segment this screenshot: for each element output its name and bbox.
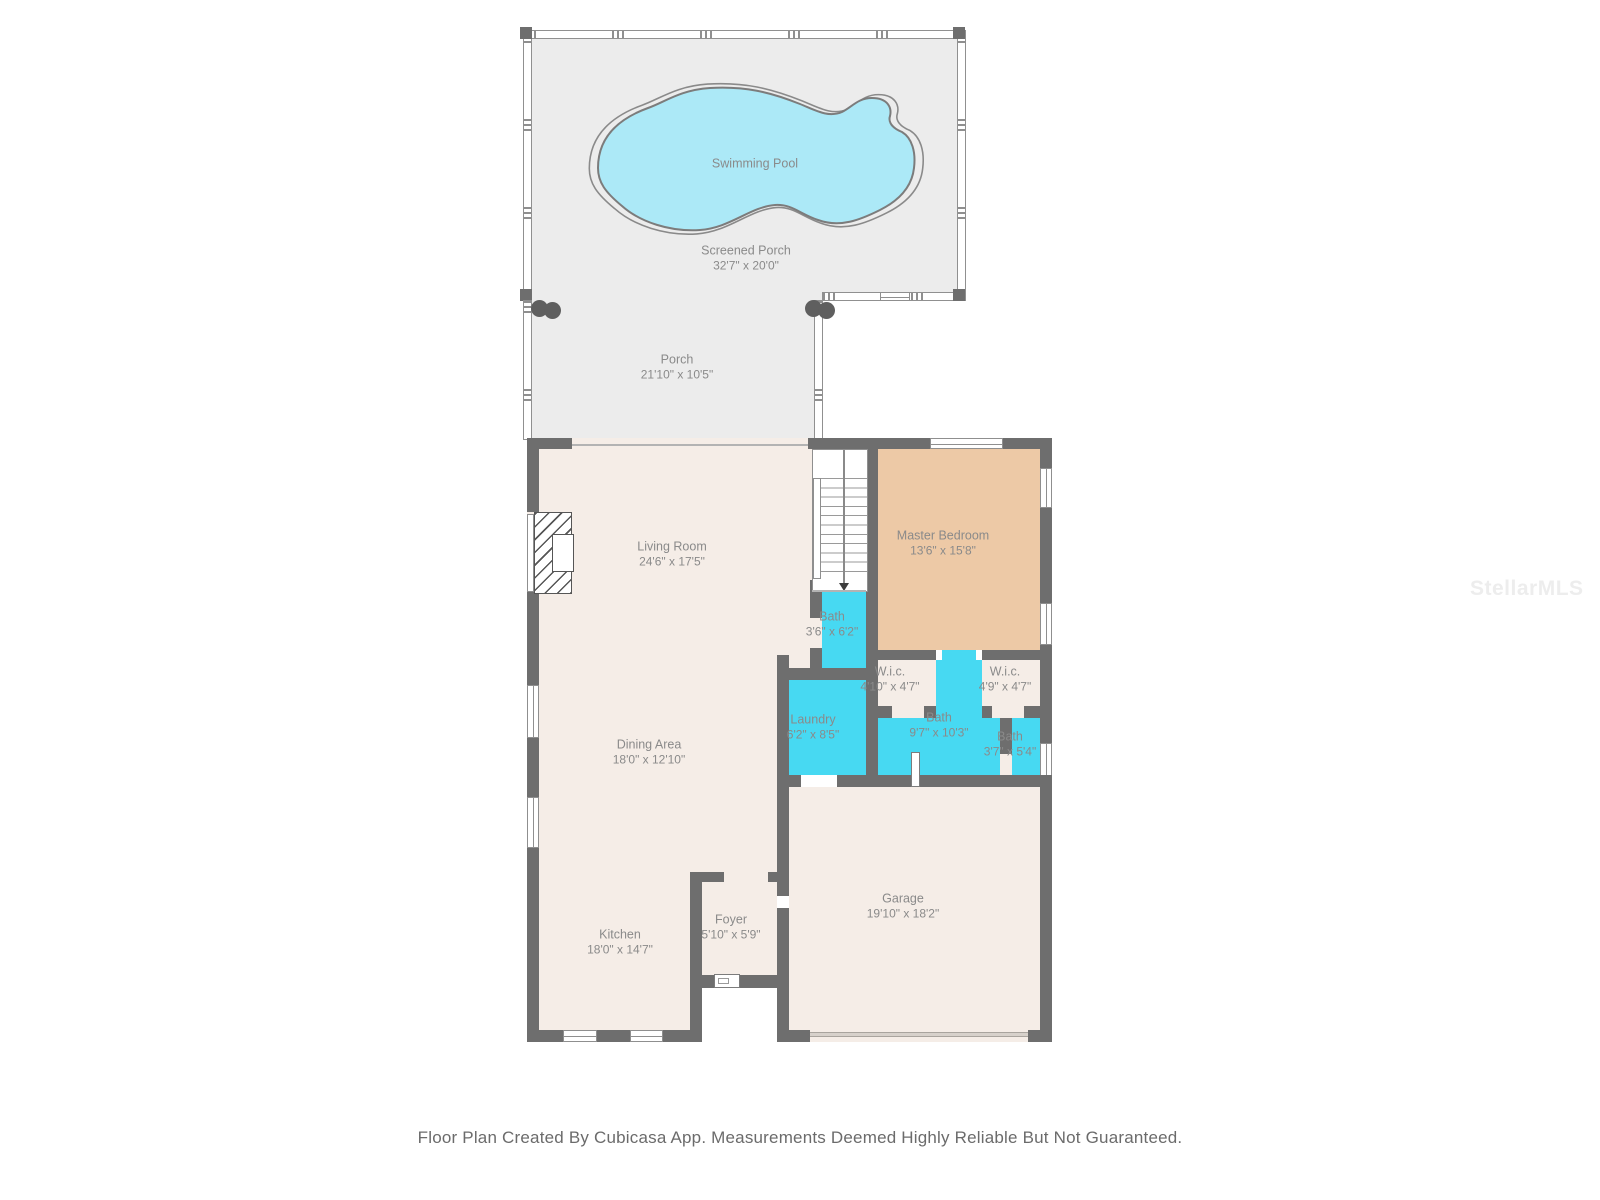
door-opening <box>801 775 837 787</box>
room-label-bath-main: Bath 9'7" x 10'3" <box>909 710 968 739</box>
wall <box>1028 1030 1052 1042</box>
room-dims: 32'7" x 20'0" <box>701 258 791 272</box>
window <box>930 438 1003 449</box>
screen-window <box>880 292 910 301</box>
wall <box>702 872 724 882</box>
room-label-porch: Porch 21'10" x 10'5" <box>641 352 714 381</box>
screen-wall-left <box>523 30 532 300</box>
room-dims: 3'6" x 6'2" <box>806 624 858 638</box>
room-label-living-room: Living Room 24'6" x 17'5" <box>637 539 706 568</box>
entry-recess <box>702 987 777 1042</box>
room-label-wic-left: W.i.c. 4'10" x 4'7" <box>860 664 919 693</box>
screen-post <box>520 27 532 39</box>
wall <box>527 438 539 512</box>
wall <box>982 706 992 718</box>
room-dims: 3'7" x 5'4" <box>984 744 1036 758</box>
room-name: Bath <box>984 729 1036 744</box>
wall <box>597 1030 630 1042</box>
room-dims: 18'0" x 14'7" <box>587 942 653 956</box>
room-name: Swimming Pool <box>712 157 798 172</box>
room-name: W.i.c. <box>860 664 919 679</box>
door-leaf <box>911 752 920 787</box>
room-name: Kitchen <box>587 927 653 942</box>
stair-railing <box>813 478 821 579</box>
wall <box>777 908 789 1042</box>
wall <box>1040 438 1052 468</box>
wall <box>878 650 936 660</box>
wall <box>527 592 539 685</box>
wall <box>777 1030 810 1042</box>
room-dims: 9'7" x 10'3" <box>909 725 968 739</box>
room-label-screened-porch: Screened Porch 32'7" x 20'0" <box>701 243 791 272</box>
wall <box>808 438 930 449</box>
room-dims: 19'10" x 18'2" <box>867 906 940 920</box>
room-label-foyer: Foyer 5'10" x 5'9" <box>701 912 760 941</box>
window <box>527 685 539 738</box>
stair-direction-line <box>843 450 845 583</box>
porch-screen-right <box>814 300 823 440</box>
room-name: Screened Porch <box>701 243 791 258</box>
passage-floor <box>936 650 982 718</box>
fireplace-window <box>527 514 534 592</box>
floor-plan-canvas: Swimming Pool Screened Porch 32'7" x 20'… <box>0 0 1600 1200</box>
wall <box>1024 706 1040 718</box>
room-label-dining-area: Dining Area 18'0" x 12'10" <box>613 737 686 766</box>
entry-door <box>714 974 740 988</box>
room-name: Laundry <box>787 712 839 727</box>
door-opening <box>777 896 789 908</box>
swimming-pool-shape <box>560 60 960 250</box>
room-label-master-bedroom: Master Bedroom 13'6" x 15'8" <box>897 528 989 557</box>
room-label-bath-small: Bath 3'7" x 5'4" <box>984 729 1036 758</box>
window <box>630 1030 663 1042</box>
wall <box>810 648 822 668</box>
window <box>1040 468 1052 508</box>
screen-post <box>953 289 965 301</box>
room-name: Porch <box>641 352 714 367</box>
wall <box>1040 508 1052 603</box>
wall <box>777 775 801 787</box>
room-name: Bath <box>909 710 968 725</box>
screen-wall-top <box>523 30 966 39</box>
wall <box>837 775 1052 787</box>
wall <box>702 975 714 988</box>
fireplace-firebox <box>552 534 574 572</box>
wall <box>982 650 1040 660</box>
door-jamb <box>936 650 942 660</box>
room-dims: 21'10" x 10'5" <box>641 367 714 381</box>
wall <box>1040 783 1052 1042</box>
room-label-garage: Garage 19'10" x 18'2" <box>867 891 940 920</box>
room-label-wic-right: W.i.c. 4'9" x 4'7" <box>979 664 1031 693</box>
wall <box>527 1030 563 1042</box>
garage-door <box>810 1032 1040 1037</box>
window <box>563 1030 597 1042</box>
wall <box>527 848 539 1042</box>
room-dims: 6'2" x 8'5" <box>787 727 839 741</box>
stair-bottom-line <box>812 590 866 592</box>
window <box>527 797 539 848</box>
room-dims: 4'10" x 4'7" <box>860 679 919 693</box>
room-dims: 18'0" x 12'10" <box>613 752 686 766</box>
porch-screen-left <box>523 300 532 440</box>
screen-post <box>953 27 965 39</box>
wall <box>527 738 539 797</box>
window <box>1040 603 1052 645</box>
wall <box>1040 645 1052 743</box>
room-label-laundry: Laundry 6'2" x 8'5" <box>787 712 839 741</box>
wall <box>866 706 892 718</box>
room-label-bath-stairs: Bath 3'6" x 6'2" <box>806 609 858 638</box>
wall <box>690 872 702 1042</box>
porch-column <box>818 302 835 319</box>
room-label-swimming-pool: Swimming Pool <box>712 157 798 172</box>
room-dims: 5'10" x 5'9" <box>701 927 760 941</box>
room-dims: 24'6" x 17'5" <box>637 554 706 568</box>
room-name: Bath <box>806 609 858 624</box>
room-name: Master Bedroom <box>897 528 989 543</box>
room-name: Garage <box>867 891 940 906</box>
mls-watermark: StellarMLS <box>1470 577 1584 601</box>
room-name: Living Room <box>637 539 706 554</box>
wall <box>777 668 866 680</box>
room-name: Dining Area <box>613 737 686 752</box>
room-dims: 13'6" x 15'8" <box>897 543 989 557</box>
porch-column <box>544 302 561 319</box>
room-dims: 4'9" x 4'7" <box>979 679 1031 693</box>
room-name: W.i.c. <box>979 664 1031 679</box>
wall <box>740 975 777 988</box>
porch-opening-line <box>572 444 808 446</box>
room-label-kitchen: Kitchen 18'0" x 14'7" <box>587 927 653 956</box>
room-name: Foyer <box>701 912 760 927</box>
footer-disclaimer: Floor Plan Created By Cubicasa App. Meas… <box>0 1128 1600 1148</box>
